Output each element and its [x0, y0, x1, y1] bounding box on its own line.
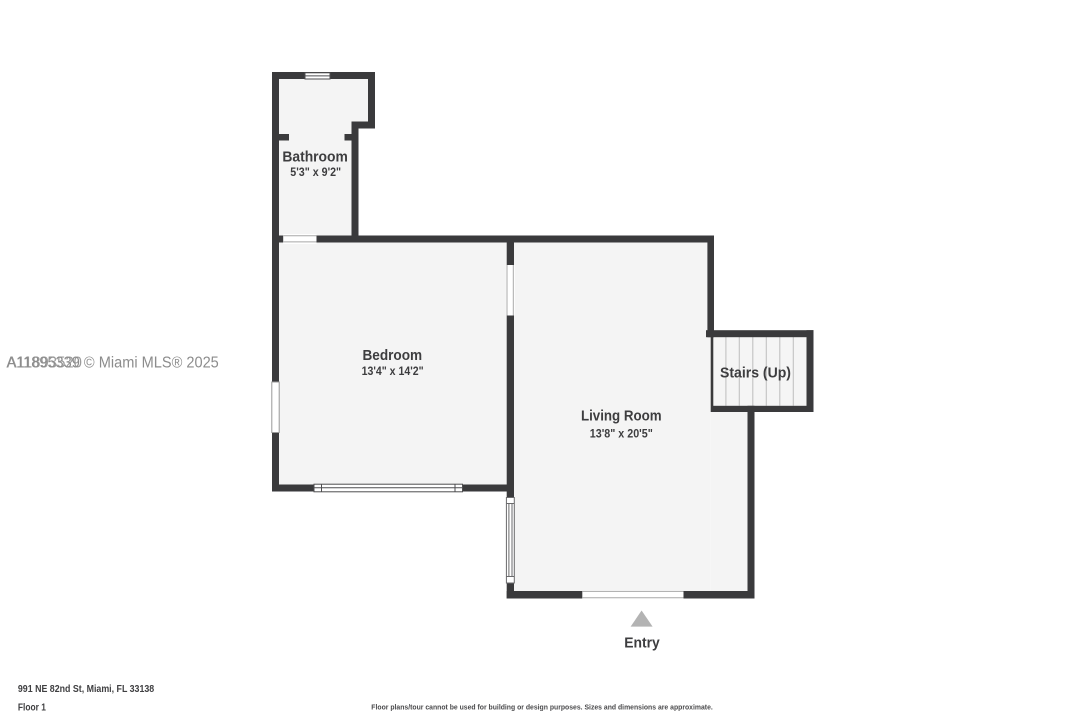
svg-text:Bathroom: Bathroom: [282, 149, 348, 165]
svg-text:Stairs (Up): Stairs (Up): [720, 366, 791, 382]
svg-text:Floor 1: Floor 1: [18, 702, 46, 713]
svg-text:Floor plans/tour cannot be use: Floor plans/tour cannot be used for buil…: [371, 703, 713, 712]
svg-text:991 NE 82nd St, Miami, FL 3313: 991 NE 82nd St, Miami, FL 33138: [18, 684, 155, 695]
svg-text:13'4" x 14'2": 13'4" x 14'2": [362, 364, 424, 378]
svg-text:5'3" x 9'2": 5'3" x 9'2": [290, 165, 341, 179]
svg-text:Living Room: Living Room: [581, 409, 662, 425]
svg-text:Bedroom: Bedroom: [362, 348, 422, 364]
svg-text:Entry: Entry: [624, 635, 660, 652]
svg-text:13'8" x 20'5": 13'8" x 20'5": [590, 426, 653, 440]
svg-text:A11895339 © Miami MLS® 2025: A11895339 © Miami MLS® 2025: [6, 354, 218, 371]
